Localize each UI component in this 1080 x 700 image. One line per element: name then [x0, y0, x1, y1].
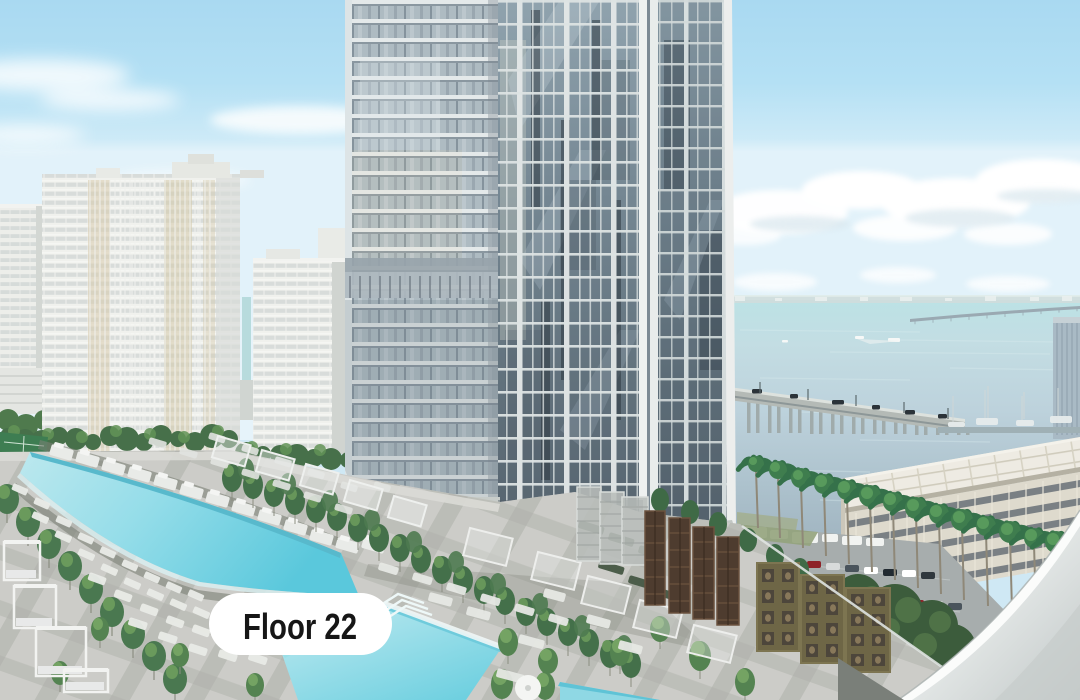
- svg-text:Floor 22: Floor 22: [243, 606, 357, 647]
